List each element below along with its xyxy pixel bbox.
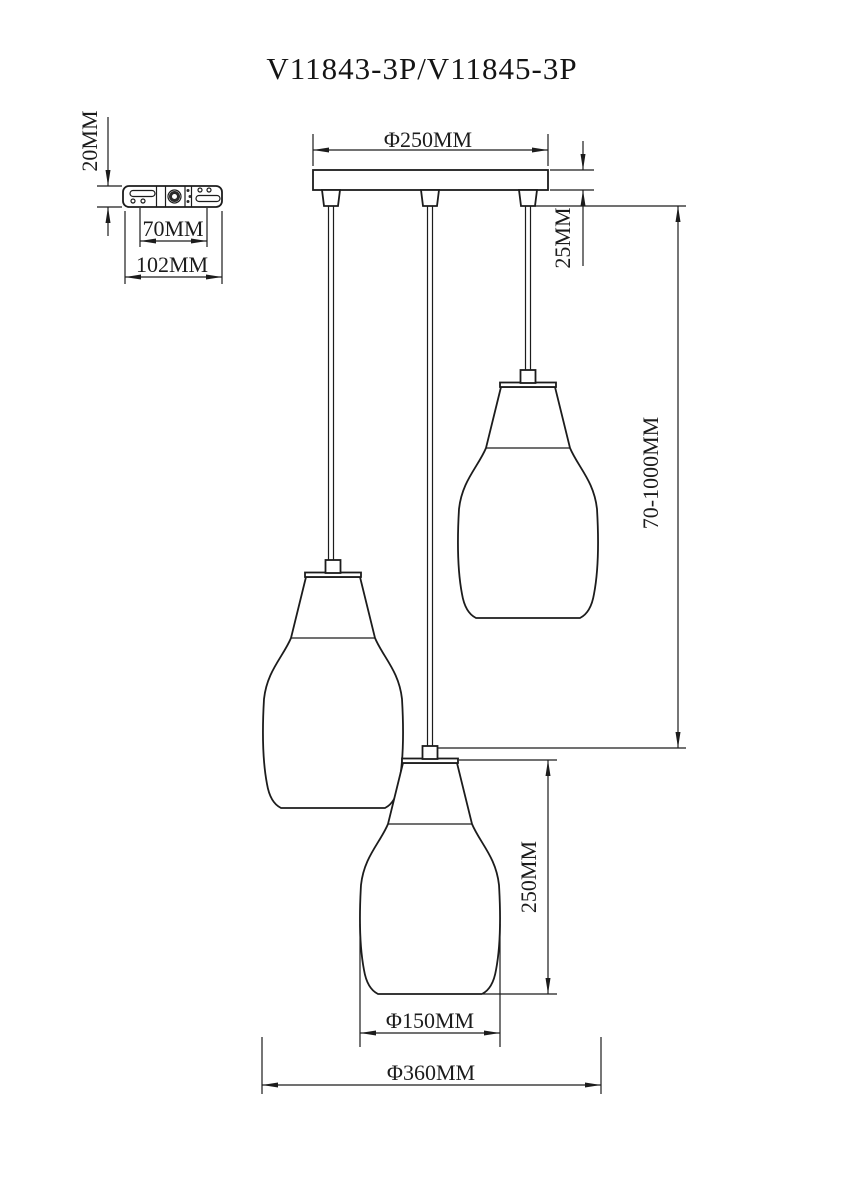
dim-label-360-diameter: Φ360MM <box>387 1060 475 1085</box>
cord-grip <box>421 190 439 206</box>
drawing-page: V11843-3P/V11845-3P 20MM 70MM <box>0 0 848 1200</box>
canopy-plate <box>313 170 548 190</box>
model-number-title: V11843-3P/V11845-3P <box>266 51 577 86</box>
cord-grip <box>322 190 340 206</box>
dim-bracket-thickness: 20MM <box>77 110 122 236</box>
dim-label-150-diameter: Φ150MM <box>386 1008 474 1033</box>
bracket-dot <box>187 189 190 192</box>
pendant-shade-left <box>263 560 403 808</box>
mounting-bracket-side-view <box>123 186 222 207</box>
dim-canopy-diameter: Φ250MM <box>313 127 548 166</box>
pendant-shade-right <box>458 370 598 618</box>
dim-label-70mm: 70MM <box>142 216 203 241</box>
dim-label-70-1000mm: 70-1000MM <box>638 417 663 529</box>
dim-bracket-hole-spacing: 70MM <box>140 208 207 247</box>
dim-label-250-diameter: Φ250MM <box>384 127 472 152</box>
bracket-dot <box>187 200 190 203</box>
dim-overall-diameter: Φ360MM <box>262 1037 601 1094</box>
dim-label-250mm: 250MM <box>516 841 541 913</box>
ceiling-canopy <box>313 170 548 206</box>
dim-label-102mm: 102MM <box>136 252 208 277</box>
dim-canopy-height: 25MM <box>550 141 594 269</box>
dim-label-25mm: 25MM <box>550 207 575 268</box>
cord-grip <box>519 190 537 206</box>
bracket-dot <box>189 195 192 198</box>
dim-label-20mm: 20MM <box>77 110 102 171</box>
pendant-lamp-technical-drawing: V11843-3P/V11845-3P 20MM 70MM <box>0 0 848 1200</box>
